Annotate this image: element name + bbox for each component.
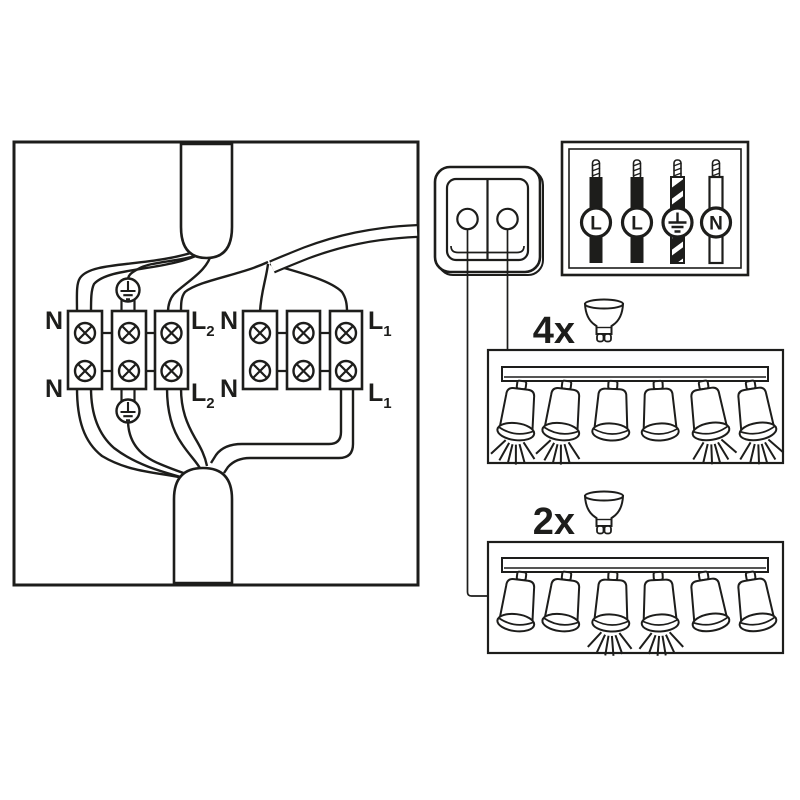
count-label-4x: 4x (533, 310, 575, 352)
legend-label-n: N (709, 214, 723, 235)
top-supply-cable (181, 144, 232, 258)
label-n-top-right: N (220, 307, 238, 335)
label-n-top-left: N (45, 307, 63, 335)
track-bar (502, 367, 768, 381)
legend-label-l1: L (590, 214, 602, 235)
wire-color-legend: L L (562, 142, 748, 275)
double-rocker-switch (435, 167, 543, 275)
instruction-diagram-page: N N L2 L2 N N L1 L1 L (0, 0, 800, 800)
rocker-button-right (497, 209, 517, 229)
label-n-bottom-right: N (220, 375, 238, 403)
count-label-2x: 2x (533, 501, 575, 543)
label-n-bottom-left: N (45, 375, 63, 403)
rocker-button-left (457, 209, 477, 229)
fixture-2x: 2x (488, 492, 783, 657)
junction-box-diagram: N N L2 L2 N N L1 L1 (14, 142, 418, 585)
gu10-bulb-icon (585, 492, 623, 534)
track-bar (502, 558, 768, 572)
wire-to-2x-fixture (468, 229, 488, 596)
bottom-fixture-cable (174, 468, 232, 583)
legend-label-l2: L (631, 214, 643, 235)
gu10-bulb-icon (585, 300, 623, 342)
wiring-diagram-svg: N N L2 L2 N N L1 L1 L (0, 0, 800, 800)
fixture-4x: 4x (488, 300, 785, 468)
